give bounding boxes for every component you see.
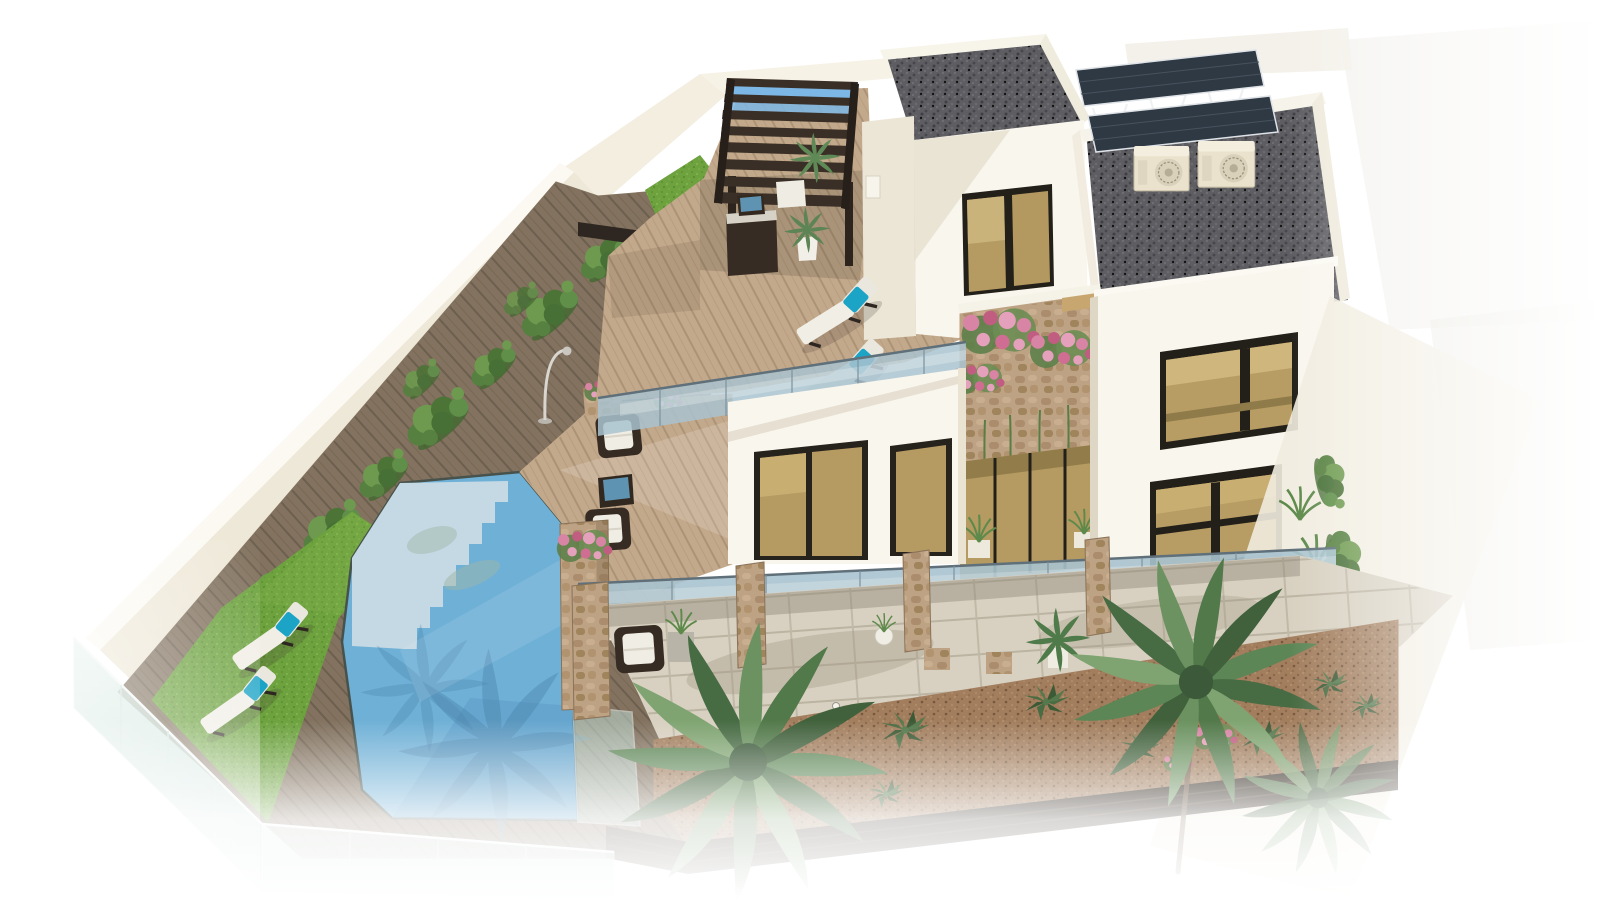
side-door [890, 438, 952, 556]
stone-feature-wall [952, 284, 1102, 584]
bench-cushion [776, 180, 806, 208]
stone-column [903, 550, 931, 652]
ac-unit [1134, 146, 1189, 191]
tower-window-upper [1160, 332, 1298, 450]
stone-column [572, 582, 610, 720]
sliding-door [754, 440, 868, 560]
stone-column [1085, 537, 1111, 636]
ground-floor-cube [728, 368, 966, 564]
fade-corner-left [0, 540, 260, 900]
stone-cube [986, 652, 1012, 674]
side-table-glass [740, 196, 762, 212]
wall-vent [866, 176, 880, 198]
villa-render [0, 0, 1600, 900]
table-glass-top [603, 477, 630, 501]
cube-edge-shade [958, 368, 966, 564]
villa-render-stage [0, 0, 1600, 900]
upper-window [962, 184, 1054, 296]
planter-box [968, 540, 990, 558]
lamp-head [563, 347, 572, 356]
ac-unit [1198, 141, 1255, 187]
wicker-cube-seat [614, 624, 665, 673]
stone-cube [924, 648, 950, 670]
